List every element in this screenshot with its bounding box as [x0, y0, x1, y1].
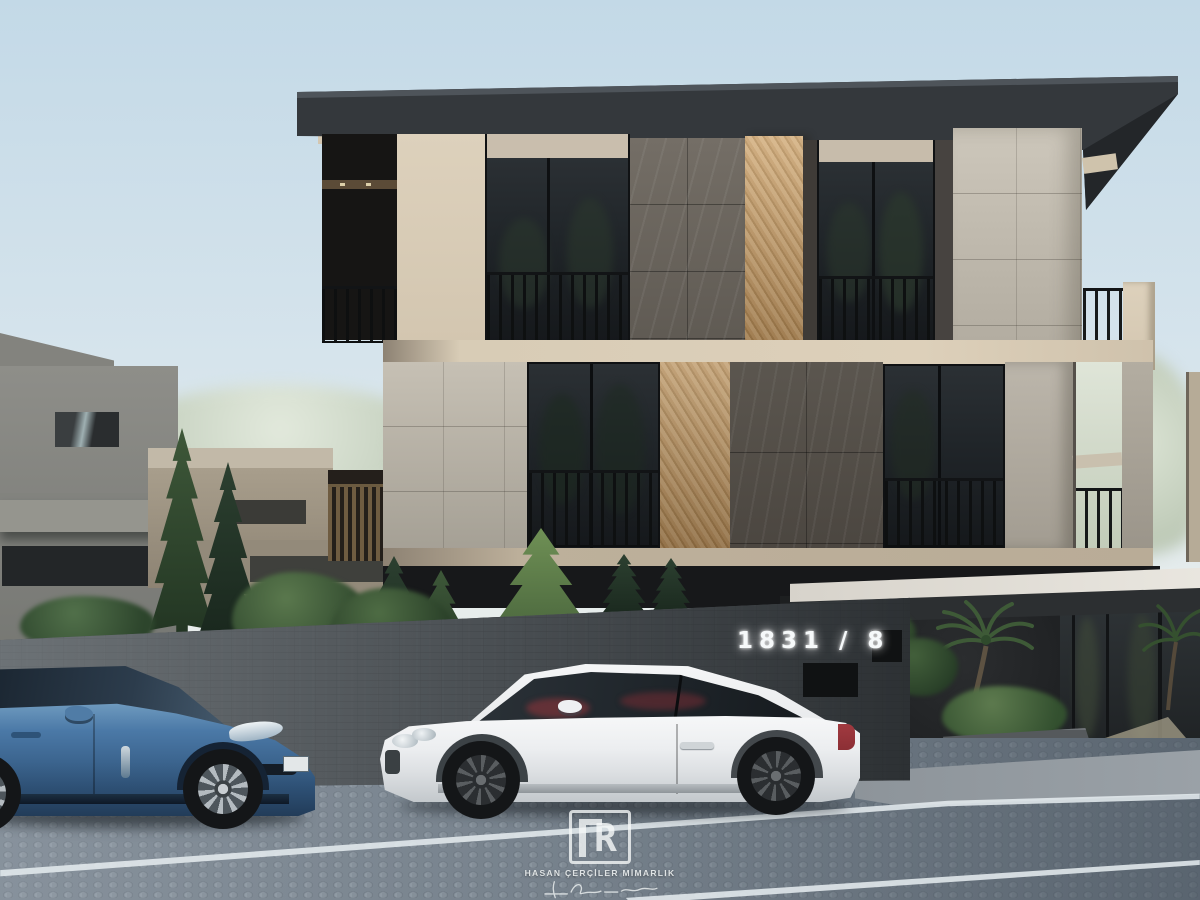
signature-scribble — [535, 879, 665, 900]
fender-vent — [121, 746, 130, 778]
headlight — [228, 719, 284, 743]
headlight — [412, 728, 436, 741]
facade-return-strip — [935, 140, 953, 344]
door-handle — [680, 742, 714, 749]
wheel-rim — [198, 764, 248, 814]
floor-fascia-band — [383, 340, 1153, 364]
license-plate — [283, 756, 309, 772]
house-number-sign: 1831 / 8 — [737, 628, 889, 654]
white-coupe — [380, 658, 875, 823]
architect-watermark: R HASAN ÇERÇİLER MİMARLIK — [495, 810, 705, 900]
logo-monogram: R — [594, 816, 617, 860]
window-railing — [819, 276, 933, 347]
tail-light — [838, 724, 855, 750]
window-soffit — [487, 134, 628, 158]
architect-firm-name: HASAN ÇERÇİLER MİMARLIK — [525, 868, 676, 878]
window-bay-lower-right — [883, 364, 1005, 548]
window-bay-upper-right — [817, 140, 935, 344]
front-grille — [385, 750, 400, 774]
facade-pier — [397, 134, 485, 344]
stone-corner-pillar — [953, 128, 1082, 372]
window-bay-upper-left — [485, 134, 630, 344]
window-railing — [885, 478, 1003, 547]
palm-tree — [1136, 596, 1200, 716]
facade-pier-lower — [1122, 362, 1153, 550]
balcony-railing — [322, 286, 397, 343]
neighbor-window-slot — [2, 546, 154, 586]
front-wheel — [442, 741, 520, 819]
door-seam — [93, 714, 95, 802]
balcony-ceiling — [322, 180, 397, 189]
wheel-rim — [456, 755, 506, 805]
facade-return-strip — [803, 140, 817, 344]
stone-panel-lower — [730, 362, 883, 550]
ceiling-light — [340, 183, 345, 186]
blue-sedan — [0, 660, 320, 840]
neighbor-balcony — [328, 470, 390, 560]
neighbor-sliver-right — [1186, 372, 1200, 562]
wheel-rim — [0, 768, 6, 818]
door-handle — [11, 732, 41, 738]
neighbor-window-slot — [55, 412, 119, 447]
stone-wall-lower-left — [383, 362, 527, 550]
window-bay-lower-left — [527, 362, 660, 550]
wood-slat-panel-lower — [660, 362, 730, 550]
ceiling-light — [366, 183, 371, 186]
window-railing — [487, 272, 628, 343]
window-railing — [529, 470, 658, 547]
wheel-rim — [751, 751, 801, 801]
upper-balcony-opening — [322, 134, 397, 340]
opening-jamb — [1073, 362, 1076, 550]
background-walkway-slab — [1073, 452, 1123, 468]
facade-pier-lower — [1005, 362, 1073, 550]
wood-slat-panel-upper — [745, 136, 803, 354]
stone-panel-upper — [630, 138, 745, 344]
wood-slat-railing — [328, 484, 390, 561]
rear-wheel — [737, 737, 815, 815]
architect-logo: R — [569, 810, 631, 864]
side-mirror — [558, 700, 582, 713]
side-opening — [1073, 362, 1122, 550]
side-mirror — [65, 706, 93, 721]
opening-railing — [1073, 488, 1122, 553]
window-soffit — [819, 140, 933, 162]
scene-architectural-rendering: 1831 / 8 — [0, 0, 1200, 900]
front-wheel — [183, 749, 263, 829]
